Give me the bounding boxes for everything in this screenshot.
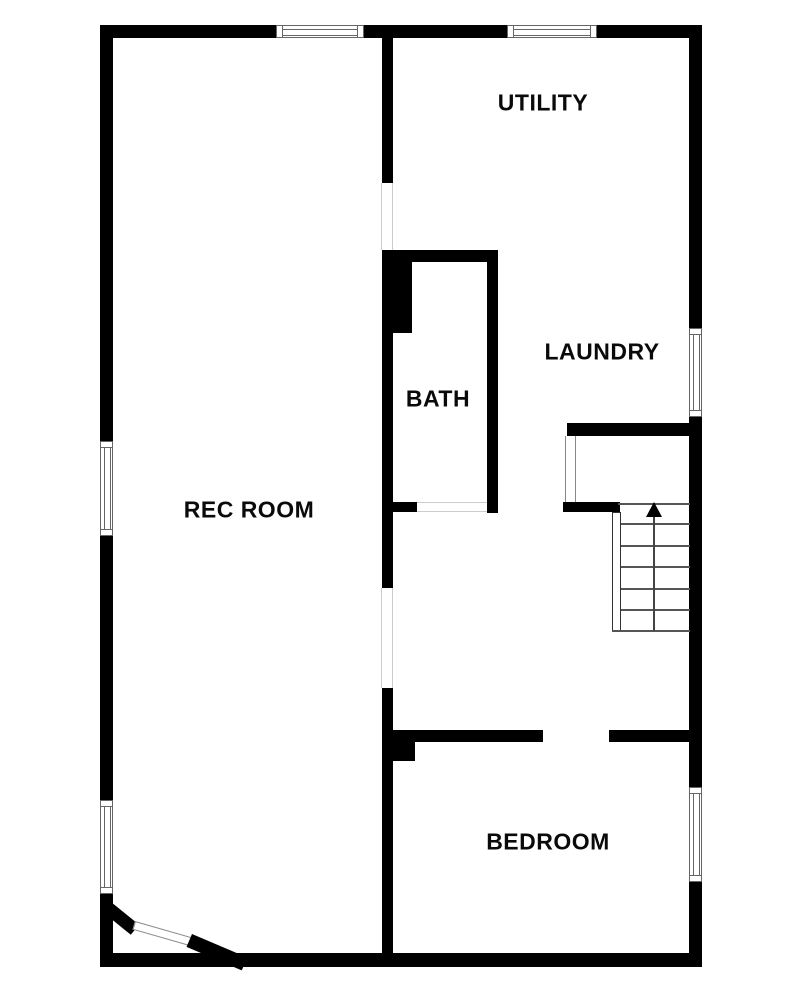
- stairs-tread: [621, 545, 690, 547]
- window-symbol-top-left: [276, 25, 364, 38]
- stairs-tread: [621, 566, 690, 568]
- door-opening-utility-edge: [381, 183, 382, 250]
- door-opening-hall-edge: [392, 588, 393, 688]
- stairs-rail: [612, 512, 621, 632]
- wall-divider-mid: [382, 250, 393, 588]
- window-symbol-right-upper: [689, 328, 702, 417]
- window-glazing: [282, 29, 358, 36]
- wall-bath-chase: [393, 250, 412, 333]
- floor-plan: UTILITY LAUNDRY BATH REC ROOM BEDROOM: [0, 0, 800, 993]
- room-label-bedroom: BEDROOM: [486, 829, 610, 856]
- arrow-up-icon: [646, 502, 662, 517]
- wall-outer-bottom: [100, 953, 702, 967]
- room-label-rec-room: REC ROOM: [184, 497, 315, 524]
- window-glazing: [513, 29, 591, 36]
- window-glazing: [104, 447, 111, 530]
- stairs-tread: [621, 523, 690, 525]
- room-label-laundry: LAUNDRY: [544, 339, 659, 366]
- wall-stairwell-left: [563, 502, 620, 512]
- wall-bedroom-corner-block: [390, 742, 415, 761]
- cased-opening-understair: [565, 436, 576, 502]
- window-glazing: [693, 334, 700, 411]
- window-glazing: [104, 806, 111, 888]
- window-symbol-right-lower: [689, 787, 702, 882]
- stairs-tread: [621, 588, 690, 590]
- wall-bath-right: [487, 251, 498, 513]
- room-label-bath: BATH: [406, 386, 470, 413]
- wall-hall-stub-left: [382, 502, 417, 512]
- wall-divider-upper: [382, 38, 393, 183]
- stairs-tread: [621, 609, 690, 611]
- stairs-arrow-shaft: [653, 514, 655, 631]
- wall-outer-top: [100, 25, 702, 38]
- room-label-utility: UTILITY: [498, 90, 588, 117]
- door-opening-utility-edge: [392, 183, 393, 250]
- door-opening-bath-edge: [417, 502, 487, 503]
- window-symbol-left-upper: [100, 441, 113, 536]
- wall-divider-lower: [382, 688, 393, 953]
- wall-bedroom-top-right: [609, 730, 690, 742]
- door-opening-bath-edge: [417, 511, 487, 512]
- window-glazing: [693, 793, 700, 876]
- window-symbol-left-lower: [100, 800, 113, 894]
- wall-bedroom-top-left: [382, 730, 543, 742]
- window-symbol-top-right: [507, 25, 597, 38]
- wall-laundry-bottom: [567, 423, 689, 436]
- stairs-bottom-edge: [612, 630, 690, 632]
- door-opening-hall-edge: [381, 588, 382, 688]
